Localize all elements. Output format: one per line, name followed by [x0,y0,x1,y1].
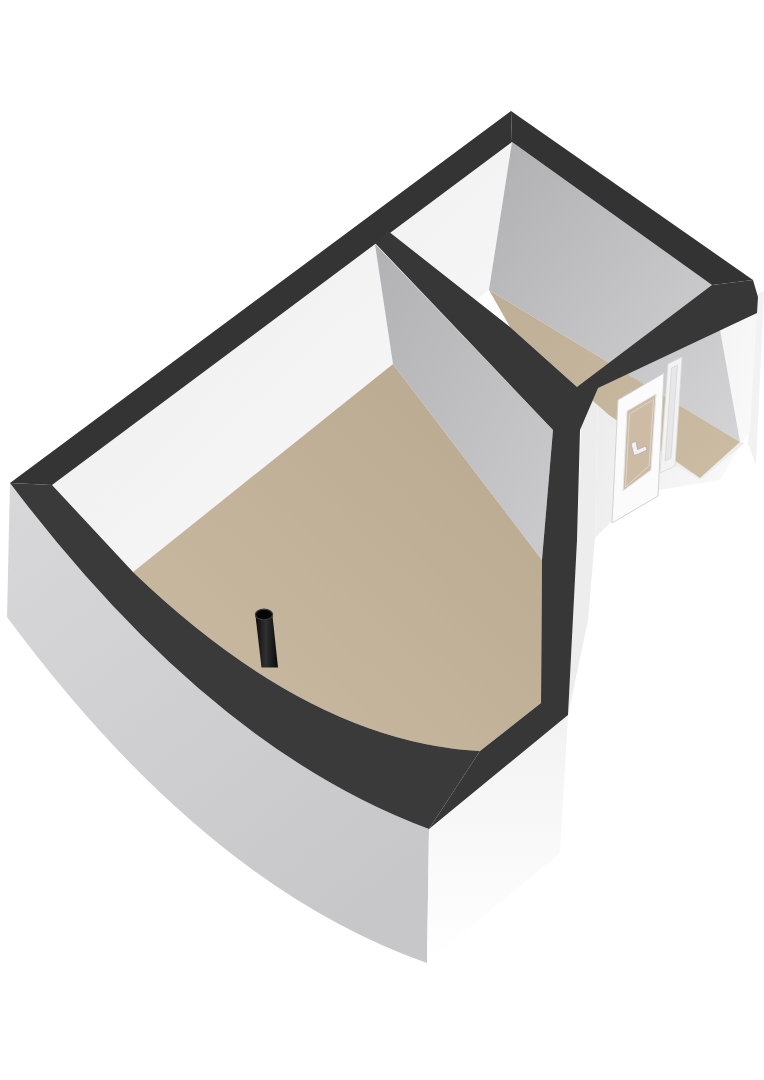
floorplan-canvas [0,0,764,1080]
shape-layer [7,111,764,963]
pipe-top-opening [255,609,272,620]
floorplan-3d-render [0,0,764,1080]
